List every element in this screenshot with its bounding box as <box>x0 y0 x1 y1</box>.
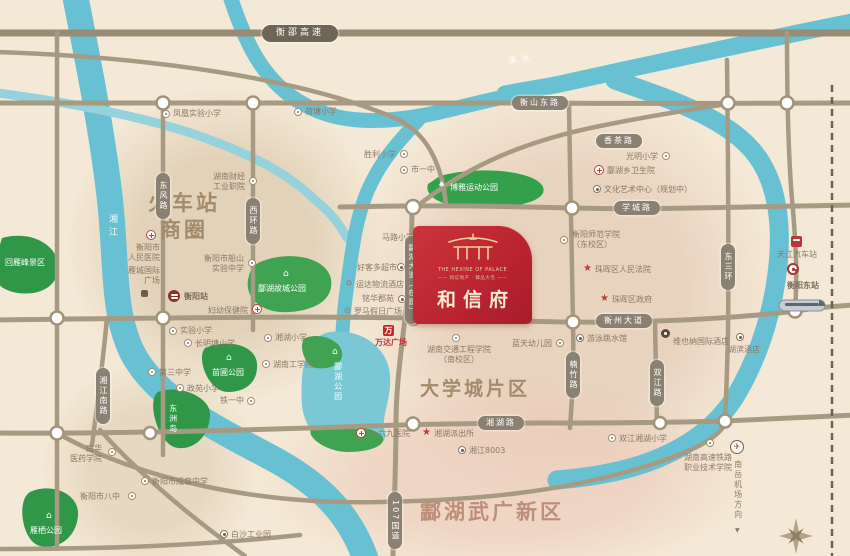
poi-changmingtang: 长明塘小学 <box>195 339 235 349</box>
hotel-icon <box>661 329 670 338</box>
pavilion-icon: ⌂ <box>46 512 52 521</box>
poi-no1-middle: 市一中 <box>411 165 435 175</box>
house-icon: ⌂ <box>346 279 352 288</box>
project-block: THE HEXINE OF PALACE —— 和信地产 · 臻品大宅 —— 和… <box>413 226 532 324</box>
road-pill-dongsanhuan: 东三环 <box>721 244 735 290</box>
plaza-ring-icon: ◎ <box>344 306 351 314</box>
train-image <box>779 300 825 311</box>
poi-169-hospital: 一六九医院 <box>370 429 410 439</box>
poi-roman-plaza: 罗马假日广场 <box>354 307 402 317</box>
park-label-yanqi: 雁栖公园 <box>30 526 62 536</box>
road-pill-nanzhu: 楠竹路 <box>566 352 580 398</box>
plaza-icon <box>141 290 148 297</box>
school-icon <box>184 339 192 347</box>
poi-intl-plaza: 雁城国际广场 <box>124 266 160 286</box>
hsr-station-logo-icon <box>787 263 799 275</box>
school-icon <box>248 259 256 267</box>
poi-chengzhang: 衡阳市成章中学 <box>152 477 208 487</box>
xiangjiang-river-label: 湘江 <box>106 214 119 240</box>
road-pill-shuangjiang: 双江路 <box>650 360 664 406</box>
poi-paichusuo: 湘湖派出所 <box>434 429 474 439</box>
poi-renmin-hospital: 衡阳市人民医院 <box>124 243 160 263</box>
shop-icon <box>397 263 405 271</box>
park-label-miaopu: 苗圃公园 <box>212 368 244 378</box>
poi-jiaotong-college: 湖南交通工程学院（南校区） <box>424 345 494 365</box>
poi-fayuan: 珠晖区人民法院 <box>595 265 651 275</box>
school-icon <box>128 492 136 500</box>
school-icon <box>264 334 272 342</box>
poi-yunda-hotel: 运达物流酒店 <box>356 280 404 290</box>
school-icon <box>452 334 460 342</box>
down-arrow-icon: ▼ <box>735 528 740 534</box>
road-pill-xihuan: 西环路 <box>246 198 260 244</box>
hospital-icon <box>146 230 156 240</box>
pavilion-icon: ⌂ <box>283 270 289 279</box>
school-icon <box>148 368 156 376</box>
poi-chuanshan-school: 衡阳市船山实验中学 <box>200 254 244 274</box>
road-pill-xuecheng: 学城路 <box>614 201 660 215</box>
hospital-icon <box>356 428 366 438</box>
school-icon <box>706 439 714 447</box>
pavilion-icon: ⌂ <box>332 348 338 357</box>
railway-station-icon <box>168 290 180 302</box>
school-icon <box>141 477 149 485</box>
hospital-icon <box>252 304 262 314</box>
poi-haokeduo: 好客多超市 <box>357 263 397 273</box>
school-icon <box>400 166 408 174</box>
compass-rose <box>779 518 813 554</box>
poi-hengyang-station: 衡阳站 <box>184 292 208 302</box>
school-icon <box>400 150 408 158</box>
poi-nanhua-college: 南华医药学院 <box>58 444 102 464</box>
poi-hubin-hotel: 湖滨酒店 <box>728 345 760 355</box>
park-label-gucheng: 酃湖故城公园 <box>258 284 306 294</box>
court-star-icon: ★ <box>583 264 592 274</box>
poi-xj8003: 湘江8003 <box>469 446 505 456</box>
poi-youyong: 游泳跳水馆 <box>587 334 627 344</box>
project-tagline: —— 和信地产 · 臻品大宅 —— <box>413 275 532 281</box>
paifang-gate-logo-icon <box>446 231 500 261</box>
road-pill-g107: 107国道 <box>388 492 402 549</box>
university-district-label: 大学城片区 <box>420 374 530 401</box>
poi-dongzhan: 衡阳东站 <box>787 281 819 291</box>
poi-airport-direction: 南岳机场方向 <box>733 460 743 520</box>
location-map: { "project": { "name_cn": "和信府", "name_e… <box>0 0 850 556</box>
poi-caijing-college: 湖南财经工业职院 <box>205 172 245 192</box>
police-star-icon: ★ <box>422 428 431 438</box>
road-pill-xiangjiangnan: 湘江南路 <box>96 368 110 424</box>
road-pill-expressway: 衡邵高速 <box>262 25 338 42</box>
school-icon <box>176 384 184 392</box>
park-label-boya: 博雅运动公园 <box>450 183 498 193</box>
poi-weishengyuan: 酃湖乡卫生院 <box>607 166 655 176</box>
road-pill-xianghu: 湘湖路 <box>478 416 524 430</box>
poi-shuangjiang-school: 双江湘湖小学 <box>619 434 667 444</box>
school-icon <box>249 177 257 185</box>
poi-wanda: 万达广场 <box>375 338 407 348</box>
road-pill-hengzhou: 衡州大道 <box>596 314 652 328</box>
poi-guangming-school: 光明小学 <box>626 152 658 162</box>
wanda-logo-icon: 万 <box>383 325 394 336</box>
school-icon <box>608 434 616 442</box>
project-name-en: THE HEXINE OF PALACE <box>413 267 532 273</box>
road-pill-dongfeng: 东风路 <box>156 173 170 219</box>
poi-vienna: 维也纳国际酒店 <box>673 337 729 347</box>
poi-gongxueyuan: 湖南工学院 <box>273 360 313 370</box>
poi-hetang-school: 荷塘小学 <box>305 107 337 117</box>
poi-shiyan-school: 实验小学 <box>180 326 212 336</box>
poi-fenghuang-school: 凤凰实验小学 <box>173 109 221 119</box>
airport-plane-icon: ✈ <box>730 440 744 454</box>
poi-lantian: 蓝天幼儿园 <box>512 339 552 349</box>
school-icon <box>556 339 564 347</box>
poi-quzhengfu: 珠晖区政府 <box>612 295 652 305</box>
school-icon <box>162 110 170 118</box>
poi-tianjiang-bus: 天江汽车站 <box>777 250 817 260</box>
pavilion-icon: ⌂ <box>226 354 232 363</box>
poi-gaotie-college: 湖南高速铁路职业技术学院 <box>684 453 732 473</box>
poi-bazhong: 衡阳市八中 <box>80 492 120 502</box>
culture-icon <box>593 185 601 193</box>
poi-minghua: 铭华郡苑 <box>362 294 394 304</box>
project-name-cn: 和信府 <box>413 285 532 312</box>
poi-shengli-school: 胜利小学 <box>364 150 396 160</box>
poi-tieyizhong: 铁一中 <box>220 396 244 406</box>
poi-fuyou: 妇幼保健院 <box>208 306 248 316</box>
school-icon <box>662 152 670 160</box>
hotel-dot-icon <box>736 333 744 341</box>
wuguang-district-label: 酃湖武广新区 <box>420 496 564 526</box>
poi-zhengyuan: 政苑小学 <box>187 384 219 394</box>
road-pill-xiangcha: 香茶路 <box>596 134 642 148</box>
poi-shifan-college: 衡阳师范学院（东校区） <box>572 230 620 250</box>
poi-wenhua: 文化艺术中心（规划中） <box>604 185 692 195</box>
school-icon <box>560 236 568 244</box>
tree-icon: ♠ <box>438 181 445 189</box>
sports-icon <box>576 334 584 342</box>
park-label-dongzhou: 东洲岛 <box>168 404 178 434</box>
poi-xianghu-school: 湘湖小学 <box>275 333 307 343</box>
expressway-line <box>0 32 850 33</box>
school-icon <box>247 397 255 405</box>
industry-icon <box>220 530 228 538</box>
park-label-huiyanfeng: 回雁峰景区 <box>5 258 45 268</box>
school-icon <box>169 327 177 335</box>
park-label-linghu: 酃湖公园 <box>333 362 343 402</box>
clinic-icon <box>594 165 604 175</box>
poi-baisha: 白沙工业园 <box>231 530 271 540</box>
residence-icon <box>458 446 466 454</box>
poi-no3-middle: 第三中学 <box>159 368 191 378</box>
bus-station-icon <box>791 236 802 247</box>
school-icon <box>108 448 116 456</box>
government-star-icon: ★ <box>600 294 609 304</box>
school-icon <box>262 360 270 368</box>
school-icon <box>294 108 302 116</box>
road-pill-hengshandong: 衡山东路 <box>512 96 568 110</box>
